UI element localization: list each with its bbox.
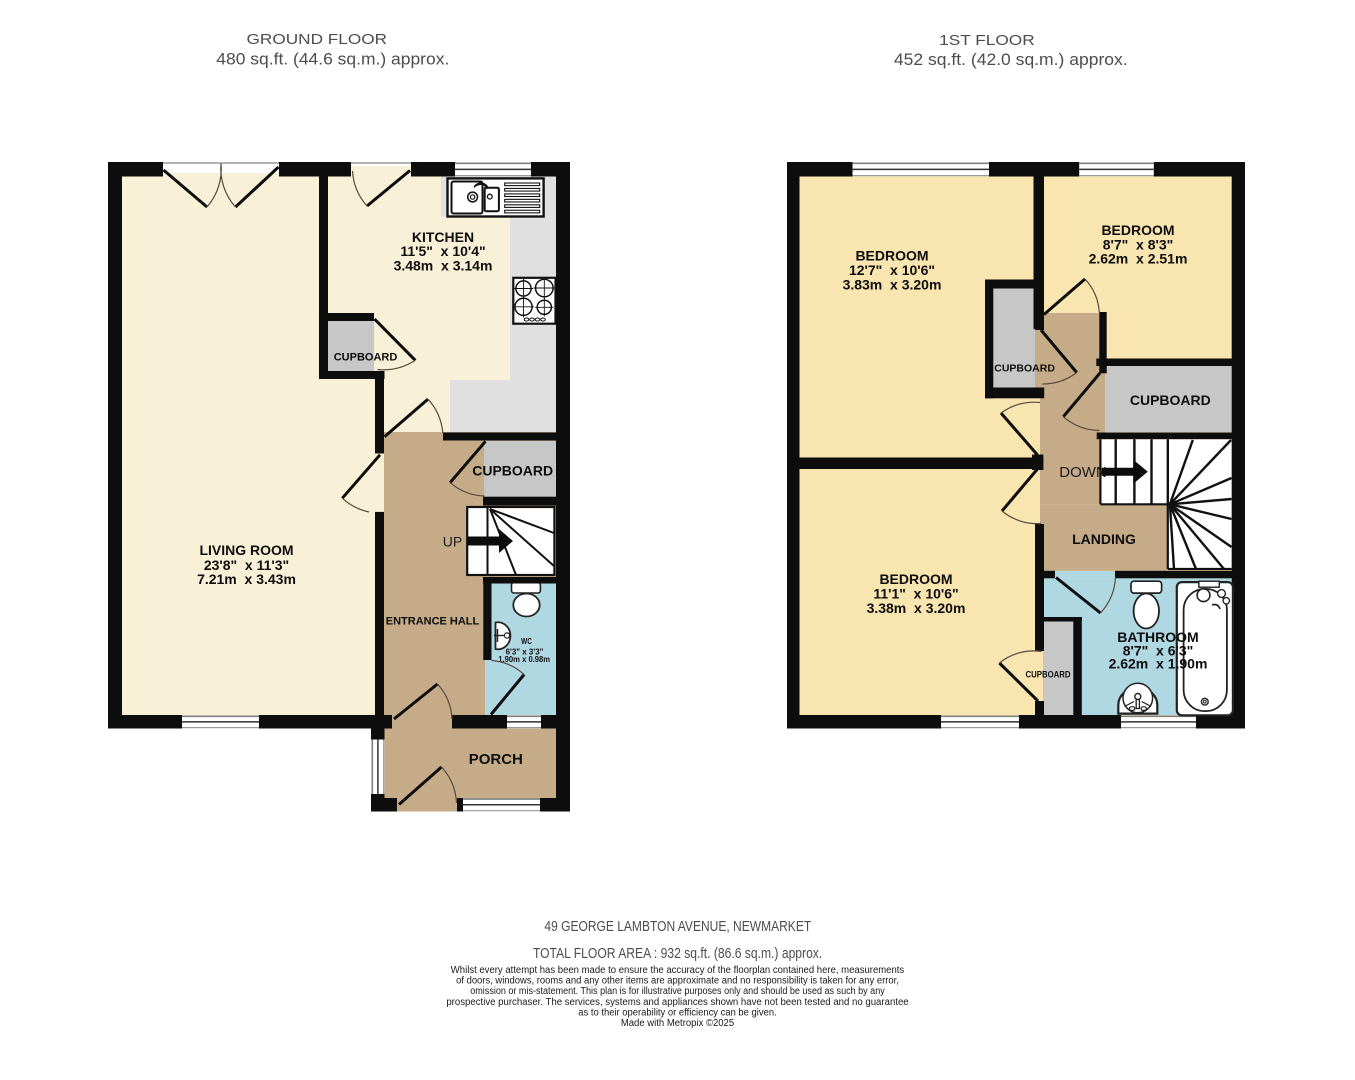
svg-text:as to their operability or eff: as to their operability or efficiency ca… <box>578 1007 776 1018</box>
svg-text:Whilst every attempt has been: Whilst every attempt has been made to en… <box>451 965 904 976</box>
svg-text:1.90m x 0.98m: 1.90m x 0.98m <box>498 655 550 664</box>
svg-text:CUPBOARD: CUPBOARD <box>472 462 553 478</box>
svg-text:Made with Metropix ©2025: Made with Metropix ©2025 <box>621 1018 735 1029</box>
svg-text:3.38m x 3.20m: 3.38m x 3.20m <box>867 600 966 616</box>
svg-text:2.62m x 1.90m: 2.62m x 1.90m <box>1109 655 1208 671</box>
svg-text:UP: UP <box>443 533 462 549</box>
svg-text:ENTRANCE HALL: ENTRANCE HALL <box>386 615 480 627</box>
svg-text:LIVING ROOM: LIVING ROOM <box>199 542 293 558</box>
svg-text:CUPBOARD: CUPBOARD <box>1130 392 1211 408</box>
svg-text:CUPBOARD: CUPBOARD <box>994 363 1055 375</box>
svg-text:12'7" x 10'6": 12'7" x 10'6" <box>849 262 935 278</box>
svg-text:2.62m x 2.51m: 2.62m x 2.51m <box>1089 250 1188 266</box>
svg-text:LANDING: LANDING <box>1072 531 1136 547</box>
svg-text:omission or mis-statement. Thi: omission or mis-statement. This plan is … <box>470 986 885 997</box>
svg-text:DOWN: DOWN <box>1059 464 1107 481</box>
svg-text:3.83m x 3.20m: 3.83m x 3.20m <box>843 277 942 293</box>
svg-text:prospective purchaser. The ser: prospective purchaser. The services, sys… <box>446 997 909 1008</box>
svg-text:GROUND FLOOR: GROUND FLOOR <box>247 31 388 48</box>
svg-text:PORCH: PORCH <box>469 751 523 768</box>
svg-text:7.21m x 3.43m: 7.21m x 3.43m <box>197 571 296 587</box>
svg-text:WC: WC <box>521 636 532 646</box>
svg-text:BEDROOM: BEDROOM <box>855 247 928 263</box>
svg-text:of doors, windows, rooms and a: of doors, windows, rooms and any other i… <box>456 976 899 987</box>
svg-text:480 sq.ft. (44.6 sq.m.) approx: 480 sq.ft. (44.6 sq.m.) approx. <box>216 50 449 68</box>
svg-text:49 GEORGE LAMBTON AVENUE, NEWM: 49 GEORGE LAMBTON AVENUE, NEWMARKET <box>544 919 811 935</box>
svg-text:CUPBOARD: CUPBOARD <box>1026 669 1071 680</box>
svg-text:TOTAL FLOOR AREA : 932 sq.ft.: TOTAL FLOOR AREA : 932 sq.ft. (86.6 sq.m… <box>533 946 822 962</box>
svg-text:452 sq.ft. (42.0 sq.m.) approx: 452 sq.ft. (42.0 sq.m.) approx. <box>894 51 1128 69</box>
svg-text:1ST FLOOR: 1ST FLOOR <box>939 32 1035 49</box>
svg-text:3.48m x 3.14m: 3.48m x 3.14m <box>394 257 493 273</box>
svg-text:CUPBOARD: CUPBOARD <box>334 351 398 363</box>
